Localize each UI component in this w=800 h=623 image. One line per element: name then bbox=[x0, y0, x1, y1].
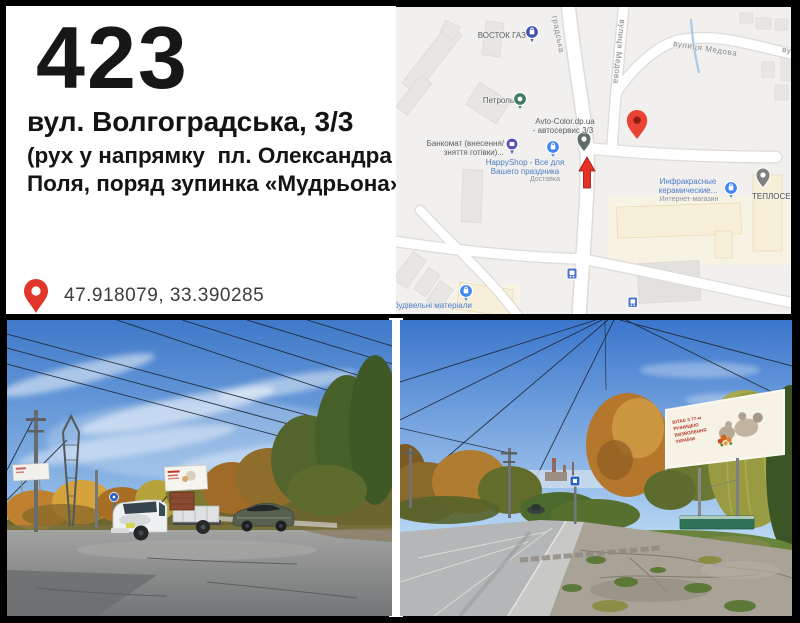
board-number: 423 bbox=[36, 14, 189, 102]
coordinates-row: 47.918079, 33.390285 bbox=[22, 278, 264, 314]
poi-label-avtocolor-line1: Avto-Color.dp.ua bbox=[534, 117, 596, 126]
coordinates-value: 47.918079, 33.390285 bbox=[64, 285, 264, 307]
poi-label-infrared-line1: Инфракрасные bbox=[656, 177, 720, 186]
poi-label-happyshop-line1: HappyShop - Все для bbox=[484, 158, 566, 167]
street-label-medova-clipped: ву bbox=[782, 45, 791, 55]
poi-label-petrol: Петроль bbox=[480, 96, 514, 105]
map-pin-icon bbox=[22, 278, 50, 314]
photo-billboard-view: ВІТАЄ З 77-м РІЧНИЦЕЮ ВИЗВОЛЕННЯ УКРАЇНИ bbox=[400, 320, 792, 616]
map-panel: ВОСТОК ГАЗ Петроль Банкомат (внесення/ з… bbox=[396, 7, 791, 314]
direction-note-line2: Поля, поряд зупинка «Мудрьона») bbox=[27, 170, 396, 198]
poi-label-bankomat-line2: зняття готівки)... bbox=[416, 148, 504, 157]
info-panel: 423 вул. Волгоградська, 3/3 (рух у напря… bbox=[6, 6, 396, 314]
poi-label-happyshop-dostavka: Доставка bbox=[520, 175, 560, 184]
poi-label-vostok-gaz: ВОСТОК ГАЗ bbox=[476, 31, 526, 40]
transit-stop-icon bbox=[628, 297, 638, 307]
poi-label-budmaterialy: будівельні матеріали bbox=[396, 301, 482, 310]
poi-label-infrared-line2: керамические... bbox=[656, 186, 720, 195]
poi-label-teploservice: ТЕПЛОСЕР bbox=[752, 192, 791, 201]
photo-intersection-view bbox=[7, 320, 392, 616]
transit-stop-icon bbox=[567, 268, 577, 279]
poi-label-avtocolor-line2: - автосервис 3/3 bbox=[528, 126, 598, 135]
direction-note-line1: (рух у напрямку пл. Олександра bbox=[27, 142, 396, 170]
road-surface bbox=[7, 528, 392, 616]
poi-label-bankomat-line1: Банкомат (внесення/ bbox=[416, 139, 504, 148]
poi-label-infrared-line3: Интернет-магазин bbox=[658, 195, 720, 204]
direction-note: (рух у напрямку пл. Олександра Поля, пор… bbox=[27, 142, 396, 198]
address-title: вул. Волгоградська, 3/3 bbox=[27, 106, 353, 138]
billboard-passport-card: 423 вул. Волгоградська, 3/3 (рух у напря… bbox=[0, 0, 800, 623]
